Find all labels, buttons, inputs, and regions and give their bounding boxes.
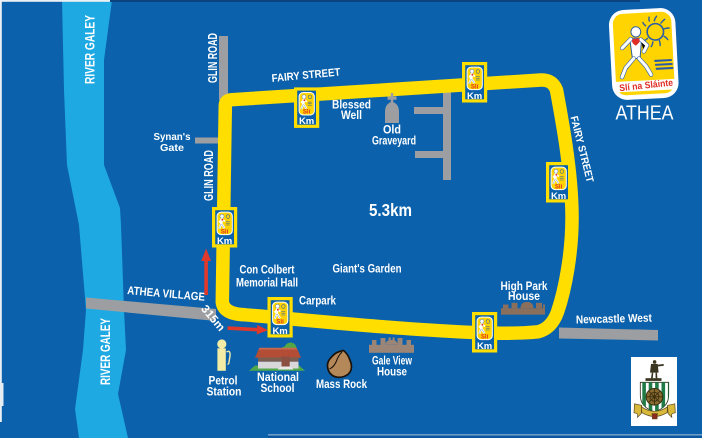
svg-text:School: School [261, 381, 295, 395]
svg-text:GLIN ROAD: GLIN ROAD [201, 150, 216, 201]
svg-text:Newcastle West: Newcastle West [576, 313, 652, 327]
svg-text:ATHEA: ATHEA [616, 102, 674, 125]
svg-text:House: House [508, 291, 540, 303]
svg-text:Carpark: Carpark [299, 296, 337, 308]
svg-text:Station: Station [207, 385, 242, 399]
svg-text:GLIN ROAD: GLIN ROAD [205, 33, 220, 83]
svg-text:RIVER GALEY: RIVER GALEY [98, 318, 113, 385]
svg-text:Mass Rock: Mass Rock [316, 379, 368, 391]
svg-text:Well: Well [341, 110, 362, 122]
svg-text:Con Colbert: Con Colbert [240, 265, 295, 277]
svg-text:Giant's Garden: Giant's Garden [333, 264, 402, 276]
svg-text:5.3km: 5.3km [369, 200, 412, 220]
svg-text:House: House [377, 367, 407, 379]
svg-text:Gate: Gate [160, 142, 184, 154]
svg-text:Graveyard: Graveyard [372, 136, 416, 148]
svg-text:Memorial Hall: Memorial Hall [236, 278, 298, 290]
svg-text:RIVER GALEY: RIVER GALEY [82, 15, 98, 84]
